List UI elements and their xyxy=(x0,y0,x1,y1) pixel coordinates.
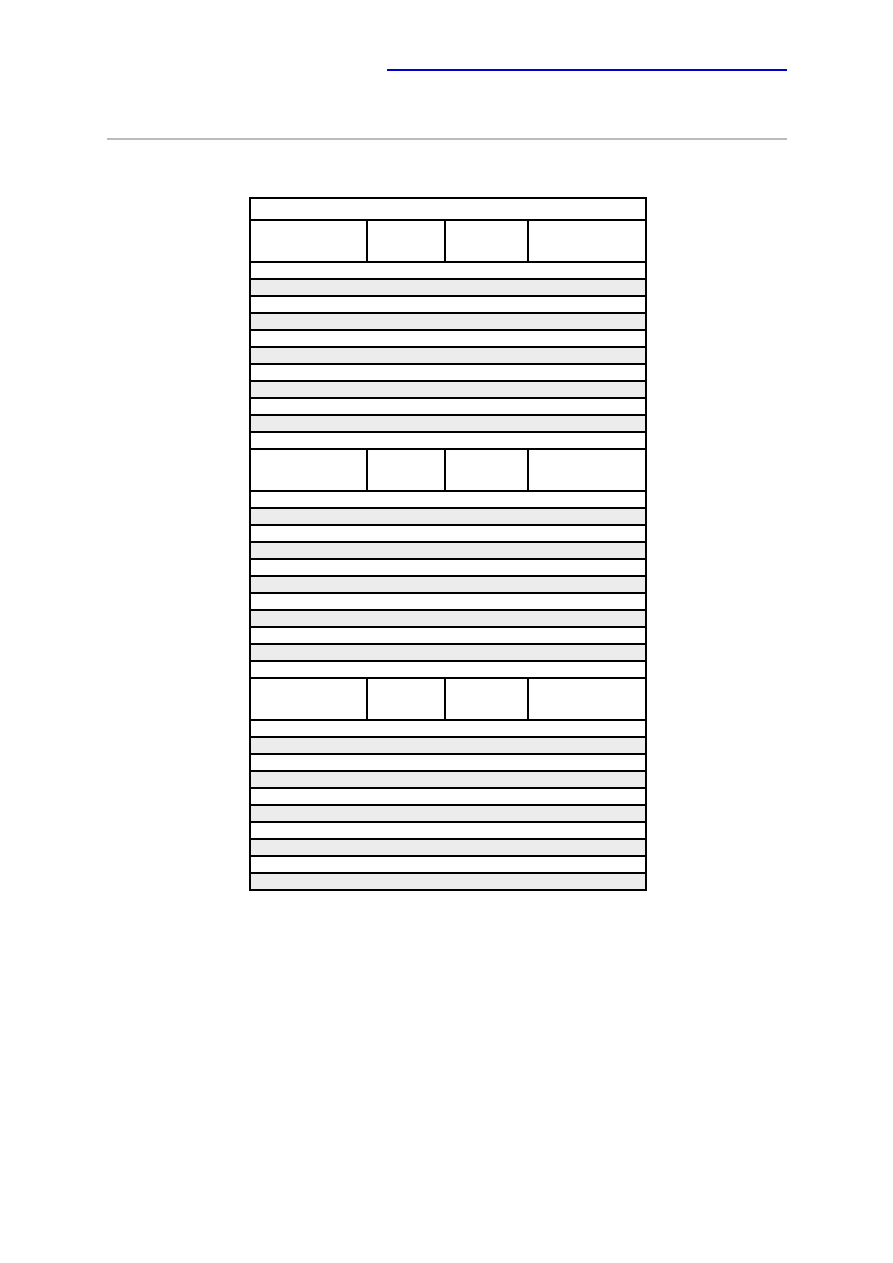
table-cell xyxy=(250,644,646,661)
table-cell xyxy=(367,220,445,262)
table-cell xyxy=(250,610,646,627)
table-cell xyxy=(250,788,646,805)
table-cell xyxy=(367,678,445,720)
table-row-data xyxy=(250,720,646,737)
table-row-data xyxy=(250,559,646,576)
table-row-data xyxy=(250,593,646,610)
table-row-data xyxy=(250,508,646,525)
table-row-data xyxy=(250,839,646,856)
table-cell xyxy=(250,432,646,449)
table-row-data xyxy=(250,822,646,839)
table-cell xyxy=(250,737,646,754)
table-cell xyxy=(250,198,646,220)
table-cell xyxy=(445,449,528,491)
table-cell xyxy=(250,839,646,856)
table-cell xyxy=(367,449,445,491)
table-row-data xyxy=(250,661,646,678)
top-link-underline[interactable] xyxy=(387,69,787,71)
table-cell xyxy=(250,525,646,542)
table-cell xyxy=(250,508,646,525)
table-container xyxy=(249,197,647,891)
table-row-data xyxy=(250,525,646,542)
table-cell xyxy=(250,296,646,313)
table-row-data xyxy=(250,364,646,381)
horizontal-divider xyxy=(107,138,787,140)
table-cell xyxy=(445,678,528,720)
table-cell xyxy=(250,805,646,822)
table-row-data xyxy=(250,262,646,279)
table-cell xyxy=(250,449,367,491)
table-cell xyxy=(250,398,646,415)
table-body xyxy=(250,198,646,890)
table-cell xyxy=(250,873,646,890)
table-row-data xyxy=(250,279,646,296)
table-cell xyxy=(250,491,646,508)
table-row-data xyxy=(250,542,646,559)
table-cell xyxy=(250,364,646,381)
table-cell xyxy=(250,347,646,364)
table-row-data xyxy=(250,737,646,754)
table-row-header xyxy=(250,220,646,262)
table-row-data xyxy=(250,610,646,627)
table-row-data xyxy=(250,771,646,788)
document-page xyxy=(0,0,893,1263)
table-row-data xyxy=(250,576,646,593)
table-row-data xyxy=(250,491,646,508)
table-row-data xyxy=(250,398,646,415)
table-row-data xyxy=(250,313,646,330)
table-cell xyxy=(250,856,646,873)
table-cell xyxy=(250,678,367,720)
table-cell xyxy=(250,822,646,839)
table-cell xyxy=(250,279,646,296)
table-row-data xyxy=(250,788,646,805)
table-row-data xyxy=(250,856,646,873)
table-cell xyxy=(250,262,646,279)
table-row-data xyxy=(250,415,646,432)
table-cell xyxy=(250,381,646,398)
table-row-data xyxy=(250,296,646,313)
table-cell xyxy=(250,627,646,644)
table-cell xyxy=(528,220,646,262)
table-cell xyxy=(250,313,646,330)
table-row-data xyxy=(250,644,646,661)
table-cell xyxy=(250,754,646,771)
empty-form-table xyxy=(249,197,647,891)
table-cell xyxy=(250,771,646,788)
table-cell xyxy=(250,720,646,737)
table-cell xyxy=(445,220,528,262)
table-cell xyxy=(528,678,646,720)
table-row-header xyxy=(250,449,646,491)
table-cell xyxy=(250,593,646,610)
table-row-data xyxy=(250,347,646,364)
table-row-data xyxy=(250,754,646,771)
table-cell xyxy=(250,559,646,576)
table-cell xyxy=(528,449,646,491)
table-cell xyxy=(250,415,646,432)
table-cell xyxy=(250,661,646,678)
table-cell xyxy=(250,542,646,559)
table-row-data xyxy=(250,432,646,449)
table-row-data xyxy=(250,873,646,890)
table-cell xyxy=(250,576,646,593)
table-cell xyxy=(250,330,646,347)
table-row-title xyxy=(250,198,646,220)
table-cell xyxy=(250,220,367,262)
table-row-data xyxy=(250,381,646,398)
table-row-header xyxy=(250,678,646,720)
table-row-data xyxy=(250,330,646,347)
table-row-data xyxy=(250,805,646,822)
table-row-data xyxy=(250,627,646,644)
